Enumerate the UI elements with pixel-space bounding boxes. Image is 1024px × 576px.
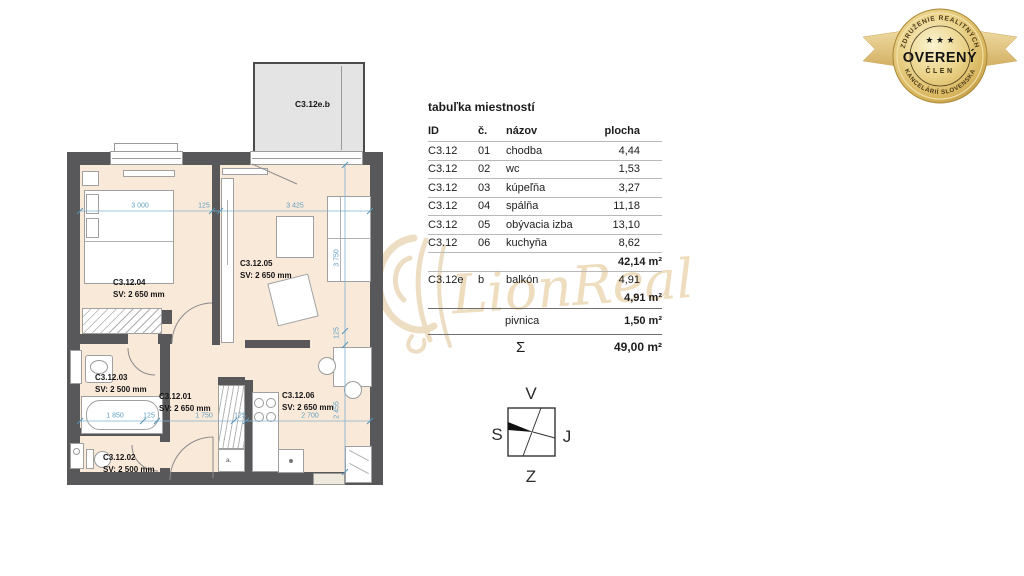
compass-line-ns bbox=[523, 408, 541, 456]
room-height: SV: 2 650 mm bbox=[282, 402, 334, 414]
total-row: Σ 49,00 m² bbox=[428, 334, 662, 360]
header-name: názov bbox=[506, 125, 592, 137]
wall-left bbox=[67, 152, 80, 485]
room-label-hall: C3.12.01 SV: 2 650 mm bbox=[159, 391, 211, 415]
cell-area: 8,62 bbox=[592, 237, 662, 249]
cell-name: spálňa bbox=[506, 200, 592, 212]
dim-top-1: 3 000 bbox=[131, 203, 149, 210]
table-row: C3.12 02 wc 1,53 bbox=[428, 160, 662, 179]
room-id: C3.12.06 bbox=[282, 390, 334, 402]
closet-label: a. bbox=[226, 457, 231, 464]
balcony-divider-line bbox=[341, 66, 342, 150]
room-height: SV: 2 650 mm bbox=[159, 403, 211, 415]
cell-id: C3.12 bbox=[428, 219, 478, 231]
compass-letter-bottom: Z bbox=[526, 467, 536, 486]
room-height: SV: 2 500 mm bbox=[103, 464, 155, 476]
cell-no: b bbox=[478, 274, 506, 286]
subtotal-rooms-value: 42,14 m² bbox=[618, 256, 662, 268]
compass-letter-left: S bbox=[491, 425, 502, 444]
badge-subtitle: ČLEN bbox=[925, 66, 954, 75]
room-height: SV: 2 650 mm bbox=[113, 289, 165, 301]
dining-chair-2 bbox=[344, 381, 362, 399]
wall-right bbox=[370, 152, 383, 485]
balcony-label: C3.12e.b bbox=[295, 99, 330, 109]
cell-name: wc bbox=[506, 163, 592, 175]
cell-no: 02 bbox=[478, 163, 506, 175]
room-label-living: C3.12.05 SV: 2 650 mm bbox=[240, 258, 292, 282]
nightstand bbox=[82, 171, 99, 186]
badge-title: OVERENÝ bbox=[903, 48, 977, 66]
compass-line-ew bbox=[533, 432, 555, 438]
table-title: tabuľka miestností bbox=[428, 100, 662, 114]
compass-letter-right: J bbox=[563, 427, 572, 446]
cell-id: C3.12 bbox=[428, 200, 478, 212]
table-row: C3.12 04 spálňa 11,18 bbox=[428, 197, 662, 216]
subtotal-balcony-value: 4,91 m² bbox=[624, 292, 662, 304]
dim-bottom-2: 125 bbox=[143, 413, 155, 420]
cell-id: C3.12 bbox=[428, 163, 478, 175]
header-no: č. bbox=[478, 125, 506, 137]
room-id: C3.12.03 bbox=[95, 372, 147, 384]
balcony-door-glass-line bbox=[252, 158, 361, 159]
room-label-kitchen: C3.12.06 SV: 2 650 mm bbox=[282, 390, 334, 414]
room-label-wc: C3.12.02 SV: 2 500 mm bbox=[103, 452, 155, 476]
room-id: C3.12.04 bbox=[113, 277, 165, 289]
stove-burner-3 bbox=[254, 412, 264, 422]
cell-area: 13,10 bbox=[592, 219, 662, 231]
table-header-row: ID č. názov plocha bbox=[428, 121, 662, 141]
cell-no: 04 bbox=[478, 200, 506, 212]
bedroom-window-sill bbox=[114, 143, 178, 152]
subtotal-rooms-row: 42,14 m² bbox=[428, 252, 662, 271]
wall-wardrobe-junction bbox=[162, 310, 172, 324]
room-id: C3.12.02 bbox=[103, 452, 155, 464]
table-row: C3.12 03 kúpeľňa 3,27 bbox=[428, 178, 662, 197]
header-id: ID bbox=[428, 125, 478, 137]
bed-pillow-2 bbox=[86, 218, 99, 238]
coffee-table bbox=[276, 216, 314, 258]
wall-kitchen-top bbox=[245, 340, 310, 348]
dim-top-3: 3 425 bbox=[286, 203, 304, 210]
washing-machine bbox=[70, 443, 84, 469]
cell-area: 1,53 bbox=[592, 163, 662, 175]
room-id: C3.12.01 bbox=[159, 391, 211, 403]
cell-name: kúpeľňa bbox=[506, 182, 592, 194]
toilet-tank bbox=[86, 449, 94, 469]
bedroom-window-line bbox=[112, 158, 181, 159]
room-height: SV: 2 500 mm bbox=[95, 384, 147, 396]
cell-no: 05 bbox=[478, 219, 506, 231]
compass-letter-top: V bbox=[525, 384, 537, 403]
cell-id: C3.12 bbox=[428, 145, 478, 157]
cell-area: 11,18 bbox=[592, 200, 662, 212]
cellar-name: pivnica bbox=[428, 315, 592, 327]
fridge bbox=[345, 446, 372, 483]
room-height: SV: 2 650 mm bbox=[240, 270, 292, 282]
wall-bedroom-bottom-a bbox=[80, 334, 128, 344]
floorplan-page: LionReal C3.12e.b a. bbox=[0, 0, 1024, 576]
sum-symbol: Σ bbox=[428, 339, 592, 356]
living-radiator bbox=[222, 168, 268, 175]
entrance-threshold bbox=[313, 473, 345, 485]
hall-closet-cell bbox=[218, 449, 245, 472]
dim-right-3: 2 455 bbox=[334, 401, 341, 419]
stove-burner-4 bbox=[266, 412, 276, 422]
sofa bbox=[327, 196, 371, 282]
room-table: tabuľka miestností ID č. názov plocha C3… bbox=[428, 100, 662, 360]
stove-burner-1 bbox=[254, 398, 264, 408]
cellar-row: pivnica 1,50 m² bbox=[428, 308, 662, 334]
table-row: C3.12 06 kuchyňa 8,62 bbox=[428, 234, 662, 253]
cell-name: kuchyňa bbox=[506, 237, 592, 249]
verified-member-badge: ZDRUŽENIE REALITNÝCH KANCELÁRIÍ SLOVENSK… bbox=[853, 4, 1024, 104]
room-id: C3.12.05 bbox=[240, 258, 292, 270]
bathroom-radiator bbox=[70, 350, 82, 384]
cell-area: 4,91 bbox=[592, 274, 662, 286]
compass-north-pointer bbox=[508, 422, 533, 432]
cell-name: chodba bbox=[506, 145, 592, 157]
room-label-bedroom: C3.12.04 SV: 2 650 mm bbox=[113, 277, 165, 301]
compass-rose: V S J Z bbox=[485, 378, 580, 488]
subtotal-balcony-row: 4,91 m² bbox=[428, 289, 662, 308]
bedroom-radiator bbox=[123, 170, 175, 177]
cell-area: 4,44 bbox=[592, 145, 662, 157]
dim-right-1: 3 750 bbox=[334, 249, 341, 267]
cell-name: balkón bbox=[506, 274, 592, 286]
bed-pillow-1 bbox=[86, 194, 99, 214]
bed-blanket-line bbox=[85, 241, 173, 242]
wall-bedroom-bottom-b bbox=[158, 334, 172, 344]
dining-chair-1 bbox=[318, 357, 336, 375]
cell-id: C3.12 bbox=[428, 237, 478, 249]
living-cabinet-line bbox=[227, 200, 228, 265]
balcony-row: C3.12e b balkón 4,91 bbox=[428, 271, 662, 290]
kitchen-sink-drain bbox=[289, 459, 293, 463]
cell-id: C3.12 bbox=[428, 182, 478, 194]
dim-top-2: 125 bbox=[198, 203, 210, 210]
table-row: C3.12 01 chodba 4,44 bbox=[428, 141, 662, 160]
wardrobe bbox=[82, 308, 162, 334]
dim-bottom-4: 125 bbox=[234, 413, 246, 420]
stove-burner-2 bbox=[266, 398, 276, 408]
cell-id: C3.12e bbox=[428, 274, 478, 286]
sofa-line-h bbox=[328, 238, 370, 239]
cell-name: obývacia izba bbox=[506, 219, 592, 231]
total-area: 49,00 m² bbox=[592, 340, 662, 354]
cell-area: 3,27 bbox=[592, 182, 662, 194]
cell-no: 01 bbox=[478, 145, 506, 157]
cell-no: 03 bbox=[478, 182, 506, 194]
badge-stars: ★ ★ ★ bbox=[925, 35, 954, 45]
wall-closet-top bbox=[218, 377, 245, 385]
dim-bottom-1: 1 850 bbox=[106, 413, 124, 420]
wall-bath-right-b bbox=[160, 468, 170, 472]
washing-machine-dial bbox=[73, 448, 80, 455]
cellar-area: 1,50 m² bbox=[592, 315, 662, 327]
table-row: C3.12 05 obývacia izba 13,10 bbox=[428, 215, 662, 234]
room-label-bathroom: C3.12.03 SV: 2 500 mm bbox=[95, 372, 147, 396]
dim-right-2: 125 bbox=[334, 327, 341, 339]
header-area: plocha bbox=[592, 125, 662, 137]
cell-no: 06 bbox=[478, 237, 506, 249]
sofa-line-v bbox=[340, 197, 341, 281]
wall-bedroom-living bbox=[212, 165, 220, 345]
